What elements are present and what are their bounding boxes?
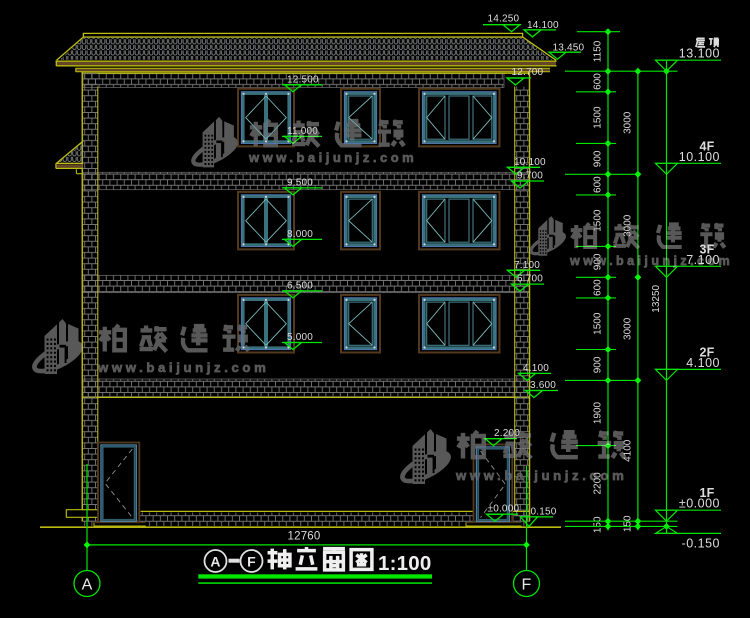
svg-text:600: 600 [593, 73, 604, 90]
svg-text:13.450: 13.450 [553, 43, 585, 54]
svg-text:150: 150 [623, 515, 634, 532]
svg-text:600: 600 [593, 176, 604, 193]
svg-text:3000: 3000 [623, 317, 634, 340]
svg-text:3000: 3000 [623, 111, 634, 134]
svg-text:3.600: 3.600 [530, 380, 556, 391]
svg-text:A: A [82, 577, 93, 594]
svg-text:12.700: 12.700 [512, 67, 544, 78]
svg-text:www.baijunjz.com: www.baijunjz.com [97, 360, 269, 375]
svg-text:-0.150: -0.150 [682, 536, 720, 550]
svg-text:F: F [247, 554, 256, 570]
svg-text:150: 150 [593, 516, 604, 533]
svg-text:A: A [210, 554, 220, 570]
svg-text:10.100: 10.100 [679, 150, 720, 164]
svg-text:www.baijunjz.com: www.baijunjz.com [569, 254, 733, 268]
svg-text:4.100: 4.100 [523, 363, 549, 374]
svg-text:600: 600 [593, 279, 604, 296]
svg-text:900: 900 [593, 356, 604, 373]
svg-text:9.700: 9.700 [517, 171, 543, 182]
svg-text:13.100: 13.100 [679, 47, 720, 61]
svg-text:5.000: 5.000 [287, 332, 313, 343]
svg-text:14.250: 14.250 [488, 14, 520, 25]
svg-text:9.500: 9.500 [287, 177, 313, 188]
svg-text:14.100: 14.100 [527, 20, 559, 31]
svg-text:±0.000: ±0.000 [488, 504, 520, 515]
svg-text:1150: 1150 [593, 40, 604, 62]
svg-text:900: 900 [593, 150, 604, 167]
svg-text:10.100: 10.100 [514, 157, 546, 168]
svg-text:www.baijunjz.com: www.baijunjz.com [248, 150, 417, 165]
svg-text:1:100: 1:100 [378, 552, 431, 575]
svg-text:12760: 12760 [288, 531, 321, 543]
svg-text:1500: 1500 [593, 106, 604, 129]
svg-text:12.500: 12.500 [287, 74, 319, 85]
svg-text:1500: 1500 [593, 312, 604, 335]
svg-text:1900: 1900 [593, 401, 604, 424]
svg-text:7.100: 7.100 [514, 260, 540, 271]
svg-text:8.000: 8.000 [287, 229, 313, 240]
svg-text:www.baijunjz.com: www.baijunjz.com [455, 468, 627, 483]
svg-text:±0.000: ±0.000 [679, 497, 720, 511]
svg-text:0.150: 0.150 [531, 506, 557, 517]
svg-text:4.100: 4.100 [686, 356, 720, 370]
svg-text:F: F [522, 577, 532, 594]
svg-text:4100: 4100 [623, 439, 634, 462]
svg-text:6.500: 6.500 [287, 280, 313, 291]
svg-text:13250: 13250 [651, 284, 662, 312]
svg-text:6.700: 6.700 [517, 274, 543, 285]
